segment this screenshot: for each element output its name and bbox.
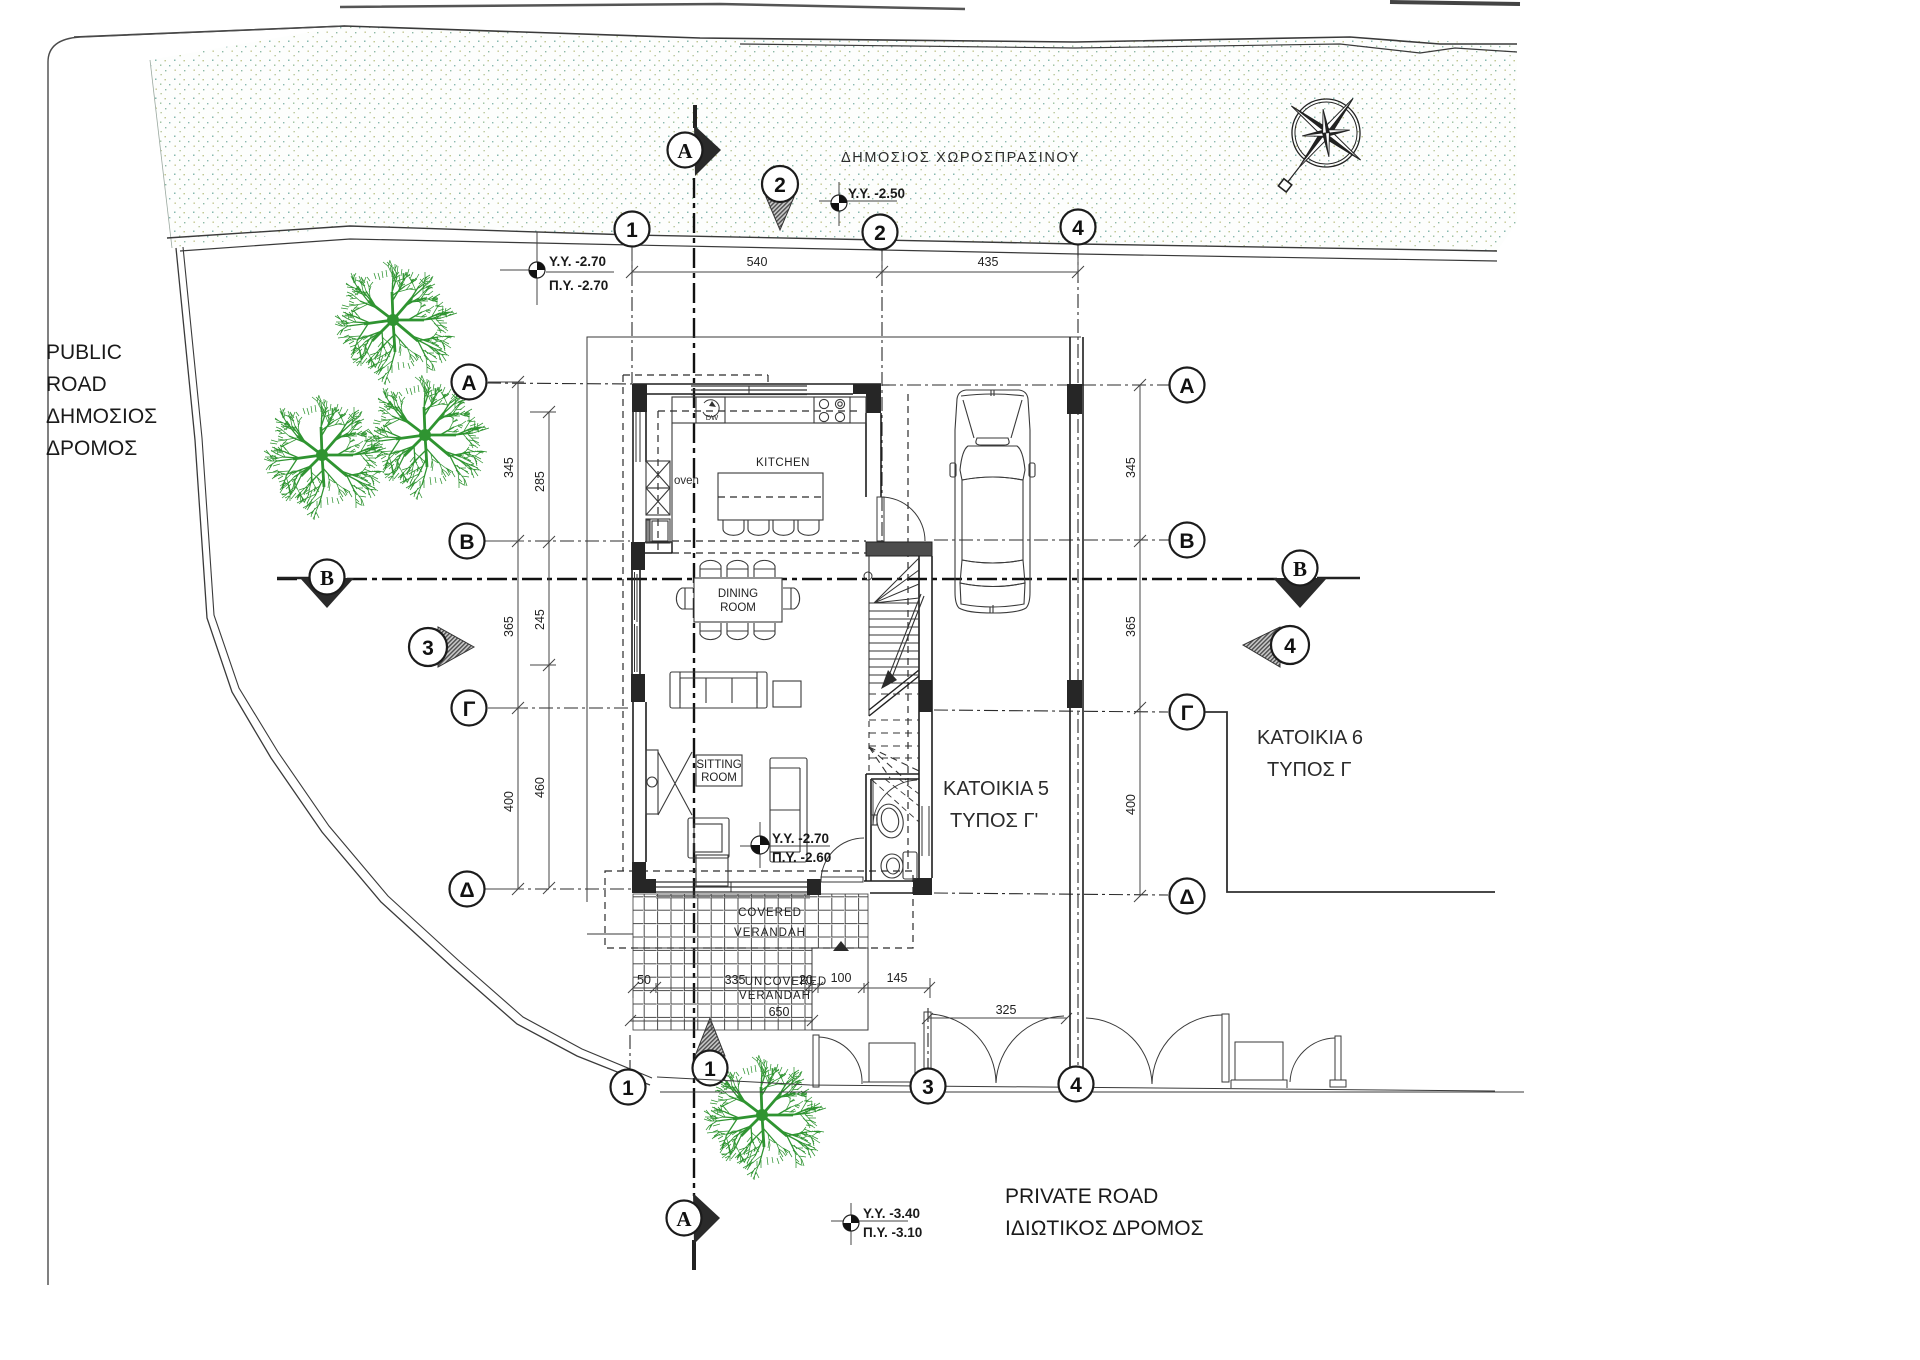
- svg-text:ΔΗΜΟΣΙΟΣ ΧΩΡΟΣΠΡΑΣΙΝΟΥ: ΔΗΜΟΣΙΟΣ ΧΩΡΟΣΠΡΑΣΙΝΟΥ: [841, 150, 1080, 166]
- svg-text:20: 20: [799, 973, 813, 987]
- svg-text:ΤΥΠΟΣ Γ: ΤΥΠΟΣ Γ: [1267, 759, 1352, 781]
- svg-text:365: 365: [502, 616, 516, 637]
- svg-text:A: A: [676, 1207, 692, 1231]
- svg-text:PRIVATE ROAD: PRIVATE ROAD: [1005, 1185, 1158, 1208]
- svg-text:ROOM: ROOM: [701, 772, 737, 784]
- svg-text:Π.Y. -3.10: Π.Y. -3.10: [863, 1225, 922, 1240]
- svg-text:Δ: Δ: [1179, 886, 1194, 909]
- svg-text:ROAD: ROAD: [46, 373, 107, 396]
- svg-text:DW: DW: [706, 413, 719, 422]
- svg-text:ΙΔΙΩΤΙΚΟΣ ΔΡΟΜΟΣ: ΙΔΙΩΤΙΚΟΣ ΔΡΟΜΟΣ: [1005, 1217, 1204, 1240]
- svg-text:Y.Y. -2.70: Y.Y. -2.70: [772, 831, 829, 846]
- svg-text:ROOM: ROOM: [720, 602, 756, 614]
- svg-text:KITCHEN: KITCHEN: [756, 457, 810, 469]
- svg-text:Γ: Γ: [1181, 702, 1194, 725]
- svg-text:ΔΡΟΜΟΣ: ΔΡΟΜΟΣ: [46, 437, 137, 460]
- svg-text:325: 325: [996, 1003, 1017, 1017]
- svg-text:ΤΥΠΟΣ Γ': ΤΥΠΟΣ Γ': [950, 810, 1038, 832]
- svg-text:100: 100: [831, 971, 852, 985]
- svg-text:B: B: [1179, 530, 1194, 553]
- svg-text:oven: oven: [674, 475, 699, 487]
- svg-text:2: 2: [874, 222, 886, 245]
- svg-text:A: A: [461, 372, 476, 395]
- svg-text:Δ: Δ: [459, 879, 474, 902]
- svg-text:1: 1: [622, 1077, 634, 1100]
- svg-text:400: 400: [1124, 794, 1138, 815]
- svg-text:1: 1: [704, 1058, 716, 1081]
- svg-text:4: 4: [1284, 635, 1296, 658]
- svg-text:VERANDAH: VERANDAH: [734, 927, 806, 939]
- svg-text:ΔΗΜΟΣΙΟΣ: ΔΗΜΟΣΙΟΣ: [46, 405, 157, 428]
- svg-text:UNCOVERED: UNCOVERED: [745, 976, 827, 988]
- svg-text:Π.Y. -2.60: Π.Y. -2.60: [772, 850, 831, 865]
- svg-text:4: 4: [1072, 217, 1084, 240]
- svg-text:Y.Y. -2.50: Y.Y. -2.50: [848, 186, 905, 201]
- svg-text:400: 400: [502, 791, 516, 812]
- svg-text:ΚΑΤΟΙΚΙΑ 5: ΚΑΤΟΙΚΙΑ 5: [943, 778, 1049, 800]
- svg-text:Π.Y. -2.70: Π.Y. -2.70: [549, 278, 608, 293]
- svg-text:PUBLIC: PUBLIC: [46, 341, 122, 364]
- svg-text:VERANDAH: VERANDAH: [739, 990, 811, 1002]
- svg-text:Y.Y. -2.70: Y.Y. -2.70: [549, 254, 606, 269]
- svg-text:335: 335: [725, 973, 746, 987]
- svg-text:245: 245: [533, 609, 547, 630]
- svg-text:DINING: DINING: [718, 588, 758, 600]
- svg-text:285: 285: [533, 471, 547, 492]
- svg-text:ΚΑΤΟΙΚΙΑ 6: ΚΑΤΟΙΚΙΑ 6: [1257, 727, 1363, 749]
- svg-text:A: A: [1179, 375, 1194, 398]
- svg-text:B: B: [459, 531, 474, 554]
- svg-text:A: A: [677, 139, 693, 163]
- svg-text:1: 1: [626, 219, 638, 242]
- svg-text:2: 2: [774, 174, 786, 197]
- svg-text:3: 3: [422, 637, 434, 660]
- svg-text:435: 435: [978, 255, 999, 269]
- svg-text:145: 145: [887, 971, 908, 985]
- svg-text:460: 460: [533, 777, 547, 798]
- svg-text:50: 50: [637, 973, 651, 987]
- svg-text:365: 365: [1124, 616, 1138, 637]
- svg-text:B: B: [320, 566, 334, 590]
- svg-text:345: 345: [502, 457, 516, 478]
- svg-text:COVERED: COVERED: [738, 907, 802, 919]
- svg-text:540: 540: [747, 255, 768, 269]
- svg-text:B: B: [1293, 557, 1307, 581]
- svg-text:345: 345: [1124, 457, 1138, 478]
- svg-text:650: 650: [769, 1005, 790, 1019]
- svg-text:Y.Y. -3.40: Y.Y. -3.40: [863, 1206, 920, 1221]
- svg-text:Γ: Γ: [463, 698, 476, 721]
- svg-text:4: 4: [1070, 1074, 1082, 1097]
- svg-text:SITTING: SITTING: [696, 759, 741, 771]
- svg-text:3: 3: [922, 1076, 934, 1099]
